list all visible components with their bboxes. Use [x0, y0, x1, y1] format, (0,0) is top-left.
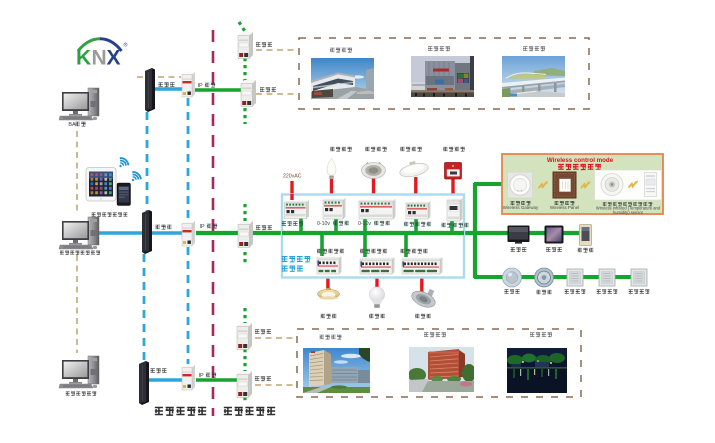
svg-text:IP: IP: [199, 373, 205, 379]
svg-text:®: ®: [124, 42, 128, 49]
svg-text:N: N: [92, 47, 107, 70]
svg-text:0-10v: 0-10v: [317, 221, 330, 227]
svg-text:220vAC: 220vAC: [283, 174, 302, 180]
svg-text:X: X: [107, 47, 121, 70]
svg-text:Wireless Panel: Wireless Panel: [550, 205, 579, 210]
svg-text:BA: BA: [68, 122, 76, 128]
svg-text:IP: IP: [198, 83, 204, 89]
svg-text:0-10v: 0-10v: [358, 221, 371, 227]
svg-text:K: K: [76, 47, 91, 70]
svg-text:IP: IP: [200, 224, 206, 230]
svg-text:Wireless Gateway: Wireless Gateway: [503, 205, 539, 210]
svg-text:Wireless control mode: Wireless control mode: [547, 157, 614, 164]
svg-text:humidity) sensor: humidity) sensor: [613, 210, 644, 215]
